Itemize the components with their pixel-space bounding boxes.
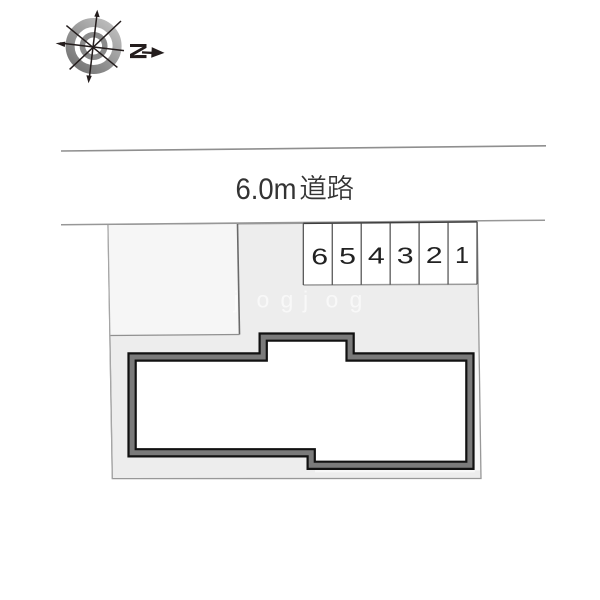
- svg-text:1: 1: [455, 243, 469, 269]
- svg-text:3: 3: [397, 243, 414, 269]
- svg-text:2: 2: [426, 243, 443, 269]
- svg-text:6.0m: 6.0m: [236, 173, 297, 206]
- svg-text:5: 5: [339, 244, 356, 270]
- svg-text:4: 4: [368, 243, 385, 269]
- svg-text:N: N: [124, 42, 151, 59]
- svg-text:6: 6: [311, 244, 328, 270]
